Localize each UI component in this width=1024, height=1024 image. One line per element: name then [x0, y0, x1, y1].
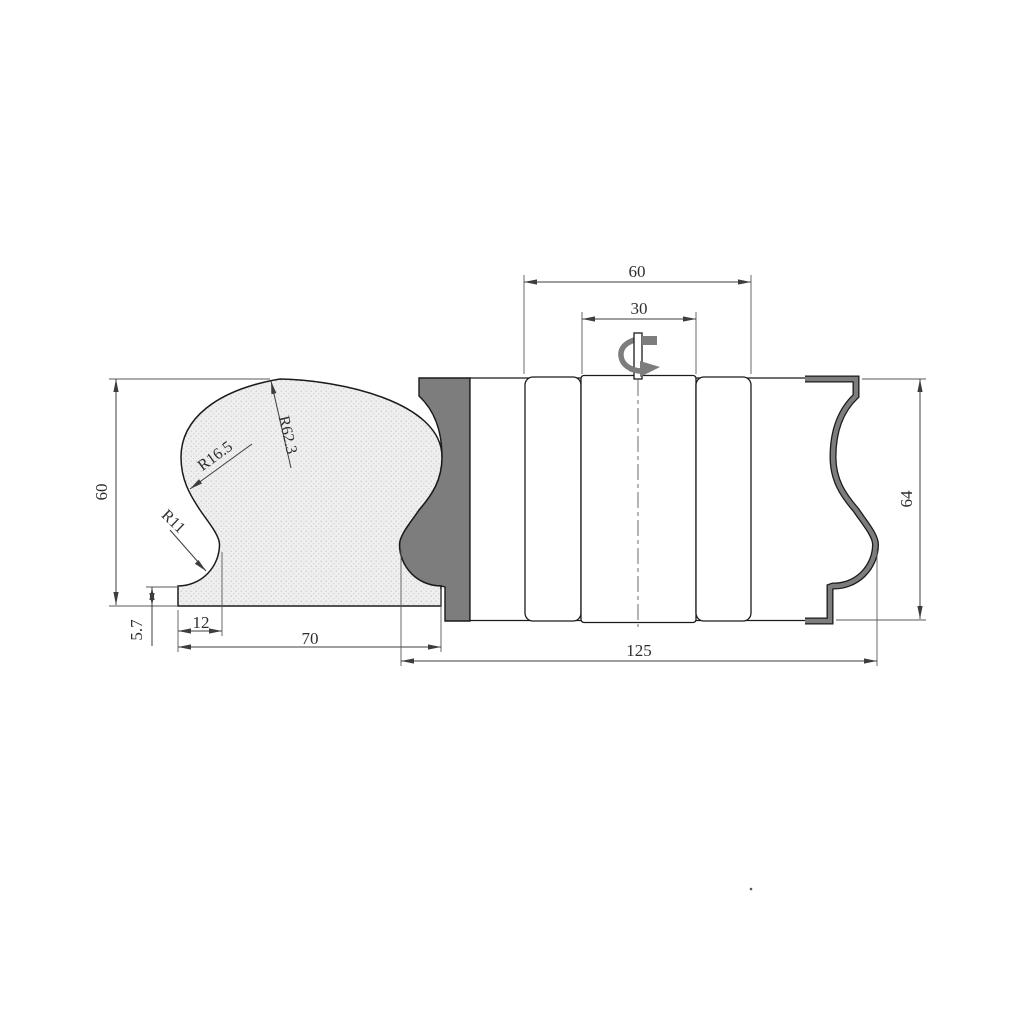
dim-label-overall-width: 125	[626, 641, 652, 660]
rotation-arrow-tab	[642, 336, 657, 345]
stray-dot	[750, 888, 753, 891]
dim-label-neck-radius: R11	[158, 507, 189, 537]
rotation-arrow-icon	[621, 333, 660, 379]
body-ring-left	[525, 377, 581, 621]
leader-neck-radius: R11	[158, 507, 206, 571]
technical-drawing: 60 5.7 12 70 125	[0, 0, 1024, 1024]
dim-label-base-height: 5.7	[127, 619, 146, 641]
dim-label-rail-width: 70	[302, 629, 319, 648]
dim-label-body-section: 60	[629, 262, 646, 281]
dim-label-hub-width: 30	[631, 299, 648, 318]
handrail-profile	[178, 379, 442, 606]
rotation-arrow-head	[640, 361, 660, 377]
drawing-canvas: 60 5.7 12 70 125	[0, 0, 1024, 1024]
dim-label-knife-span: 64	[897, 490, 916, 508]
dim-base-height: 5.7	[127, 587, 179, 646]
body-ring-right	[696, 377, 751, 621]
dim-label-rail-height: 60	[92, 484, 111, 501]
dim-label-base-inset: 12	[193, 613, 210, 632]
